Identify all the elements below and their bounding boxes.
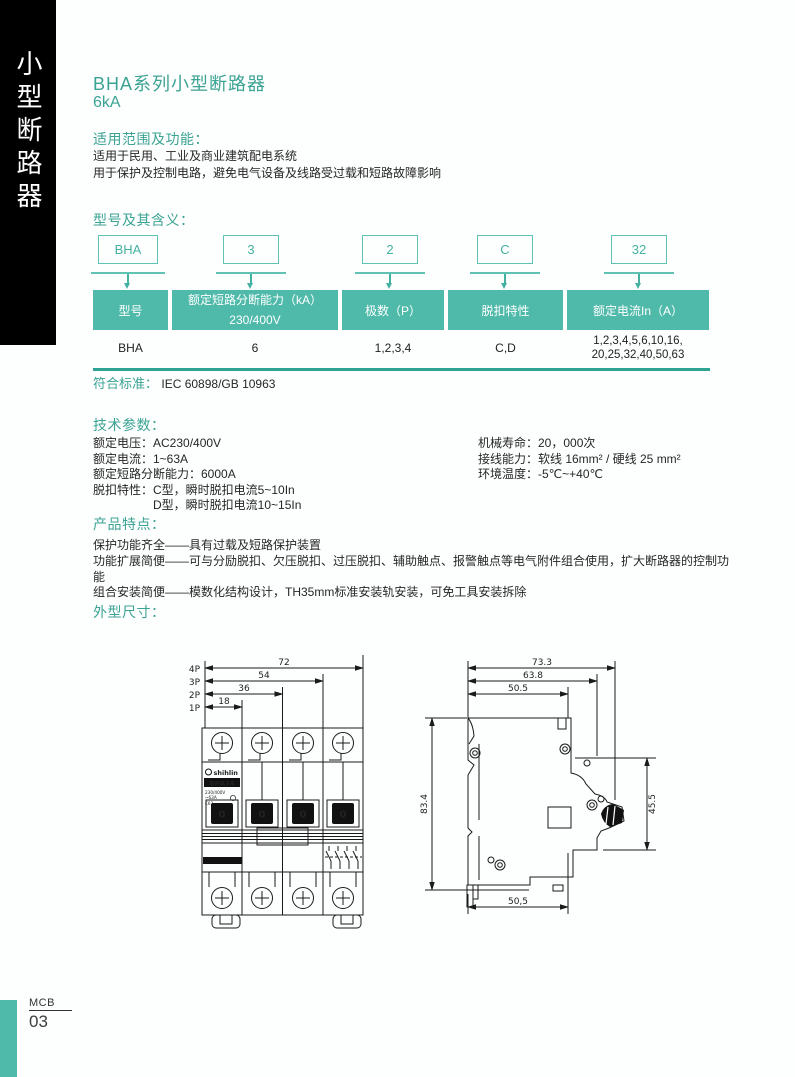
col-header: 额定电流In（A） — [567, 290, 709, 330]
toggle-0-label: 0 — [300, 810, 307, 821]
rated-current-line1: 1,2,3,4,5,6,10,16, — [593, 334, 683, 348]
down-arrow-icon — [124, 283, 130, 289]
side-dim-63-8: 63.8 — [523, 671, 543, 681]
dimensions-heading: 外型尺寸： — [93, 602, 166, 622]
tech-heading: 技术参数： — [93, 415, 166, 435]
toggle-0-label: 0 — [259, 810, 266, 821]
front-dim-36: 36 — [238, 684, 250, 694]
chapter-vertical-title: 小型断路器 — [13, 50, 43, 215]
tech-rated-current: 额定电流：1~63A — [93, 452, 301, 468]
scope-heading: 适用范围及功能： — [93, 129, 209, 149]
catalog-page: 小型断路器 BHA系列小型断路器 6kA 适用范围及功能： 适用于民用、工业及商… — [0, 0, 795, 1077]
tech-breaking-capacity: 额定短路分断能力：6000A — [93, 467, 301, 483]
table-col-trip-curve: 脱扣特性 C,D — [448, 290, 563, 366]
tech-wiring: 接线能力：软线 16mm² / 硬线 25 mm² — [478, 452, 681, 468]
side-dim-83-4: 83.4 — [420, 794, 430, 814]
col-header-top: 额定短路分断能力（kA） — [188, 290, 322, 309]
tech-rated-voltage: 额定电压：AC230/400V — [93, 436, 301, 452]
model-code-box-2: 2 — [362, 235, 418, 264]
toggle-0-label: 0 — [219, 810, 226, 821]
side-dim-73-3: 73.3 — [532, 658, 552, 668]
tech-left-column: 额定电压：AC230/400V 额定电流：1~63A 额定短路分断能力：6000… — [93, 436, 301, 514]
col-header: 型号 — [93, 290, 168, 330]
nameplate-current: ~63A — [205, 795, 217, 800]
col-header: 额定短路分断能力（kA） 230/400V — [172, 290, 338, 330]
down-arrow-icon — [635, 283, 641, 289]
chapter-side-tab: 小型断路器 — [0, 0, 56, 345]
table-col-breaking-capacity: 额定短路分断能力（kA） 230/400V 6 — [172, 290, 338, 366]
table-col-model: 型号 BHA — [93, 290, 168, 366]
standard-line: 符合标准： IEC 60898/GB 10963 — [93, 376, 275, 393]
model-code-box-BHA: BHA — [98, 235, 158, 264]
col-value: 1,2,3,4 — [342, 330, 444, 366]
toggle-lever — [601, 804, 624, 827]
col-value: C,D — [448, 330, 563, 366]
col-value: 6 — [172, 330, 338, 366]
model-table: 型号 BHA 额定短路分断能力（kA） 230/400V 6 极数（P） 1,2… — [93, 290, 710, 366]
page-title: BHA系列小型断路器 — [93, 70, 266, 96]
down-arrow-icon — [247, 283, 253, 289]
table-col-rated-current: 额定电流In（A） 1,2,3,4,5,6,10,16, 20,25,32,40… — [567, 290, 709, 366]
standard-value: IEC 60898/GB 10963 — [161, 377, 275, 391]
tech-trip-curve-d: D型，瞬时脱扣电流10~15In — [93, 498, 301, 514]
features-list: 保护功能齐全——具有过载及短路保护装置 功能扩展简便——可与分励脱扣、欠压脱扣、… — [93, 538, 733, 601]
footer-accent-bar — [0, 1000, 17, 1077]
front-dim-18: 18 — [218, 697, 230, 707]
col-value: 1,2,3,4,5,6,10,16, 20,25,32,40,50,63 — [567, 330, 709, 366]
feature-line2: 功能扩展简便——可与分励脱扣、欠压脱扣、过压脱扣、辅助触点、报警触点等电气附件组… — [93, 554, 733, 586]
table-bottom-rule — [93, 368, 710, 371]
side-dim-45-5: 45.5 — [648, 794, 658, 814]
tech-mech-life: 机械寿命：20，000次 — [478, 436, 681, 452]
front-dim-54: 54 — [258, 671, 270, 681]
table-col-poles: 极数（P） 1,2,3,4 — [342, 290, 444, 366]
pole-label-1p: 1P — [189, 704, 201, 714]
front-dim-72: 72 — [278, 658, 289, 668]
model-code-box-32: 32 — [611, 235, 667, 264]
brand-logo-icon — [206, 769, 212, 775]
features-heading: 产品特点： — [93, 514, 166, 534]
col-value: BHA — [93, 330, 168, 366]
model-code-box-3: 3 — [223, 235, 279, 264]
brand-text: shihlin — [214, 769, 239, 777]
footer-page-number: 03 — [29, 1012, 48, 1032]
down-arrow-icon — [386, 283, 392, 289]
tech-ambient-temp: 环境温度：-5℃~+40℃ — [478, 467, 681, 483]
model-label-text: BHA34 — [210, 780, 235, 788]
col-header: 极数（P） — [342, 290, 444, 330]
col-header: 脱扣特性 — [448, 290, 563, 330]
tech-right-column: 机械寿命：20，000次 接线能力：软线 16mm² / 硬线 25 mm² 环… — [478, 436, 681, 483]
scope-line1: 适用于民用、工业及商业建筑配电系统 — [93, 148, 297, 165]
toggle-0-label: 0 — [340, 810, 347, 821]
col-header-bottom: 230/400V — [229, 311, 280, 330]
feature-line1: 保护功能齐全——具有过载及短路保护装置 — [93, 538, 733, 554]
page-subtitle: 6kA — [93, 94, 121, 112]
model-heading: 型号及其含义： — [93, 210, 195, 230]
rated-current-line2: 20,25,32,40,50,63 — [592, 348, 685, 362]
scope-line2: 用于保护及控制电路，避免电气设备及线路受过载和短路故障影响 — [93, 165, 441, 182]
side-dim-50-5-bottom: 50,5 — [508, 897, 528, 907]
side-view-drawing: 73.3 63.8 50.5 83.4 45.5 50,5 — [405, 648, 665, 938]
side-dim-50-5-top: 50.5 — [508, 684, 528, 694]
footer-section-label: MCB — [29, 997, 72, 1011]
nameplate-curve: C63 — [205, 801, 214, 806]
tech-trip-curve-c: 脱扣特性：C型，瞬时脱扣电流5~10In — [93, 483, 301, 499]
front-view-drawing: 72 54 36 18 4P 3P 2P 1P shihlin BHA34 23… — [175, 648, 390, 938]
pole-label-4p: 4P — [189, 665, 201, 675]
pole-label-2p: 2P — [189, 691, 201, 701]
model-code-box-C: C — [477, 235, 533, 264]
standard-label: 符合标准： — [93, 376, 158, 391]
down-arrow-icon — [501, 283, 507, 289]
pole-label-3p: 3P — [189, 678, 201, 688]
feature-line3: 组合安装简便——模数化结构设计，TH35mm标准安装轨安装，可免工具安装拆除 — [93, 585, 733, 601]
